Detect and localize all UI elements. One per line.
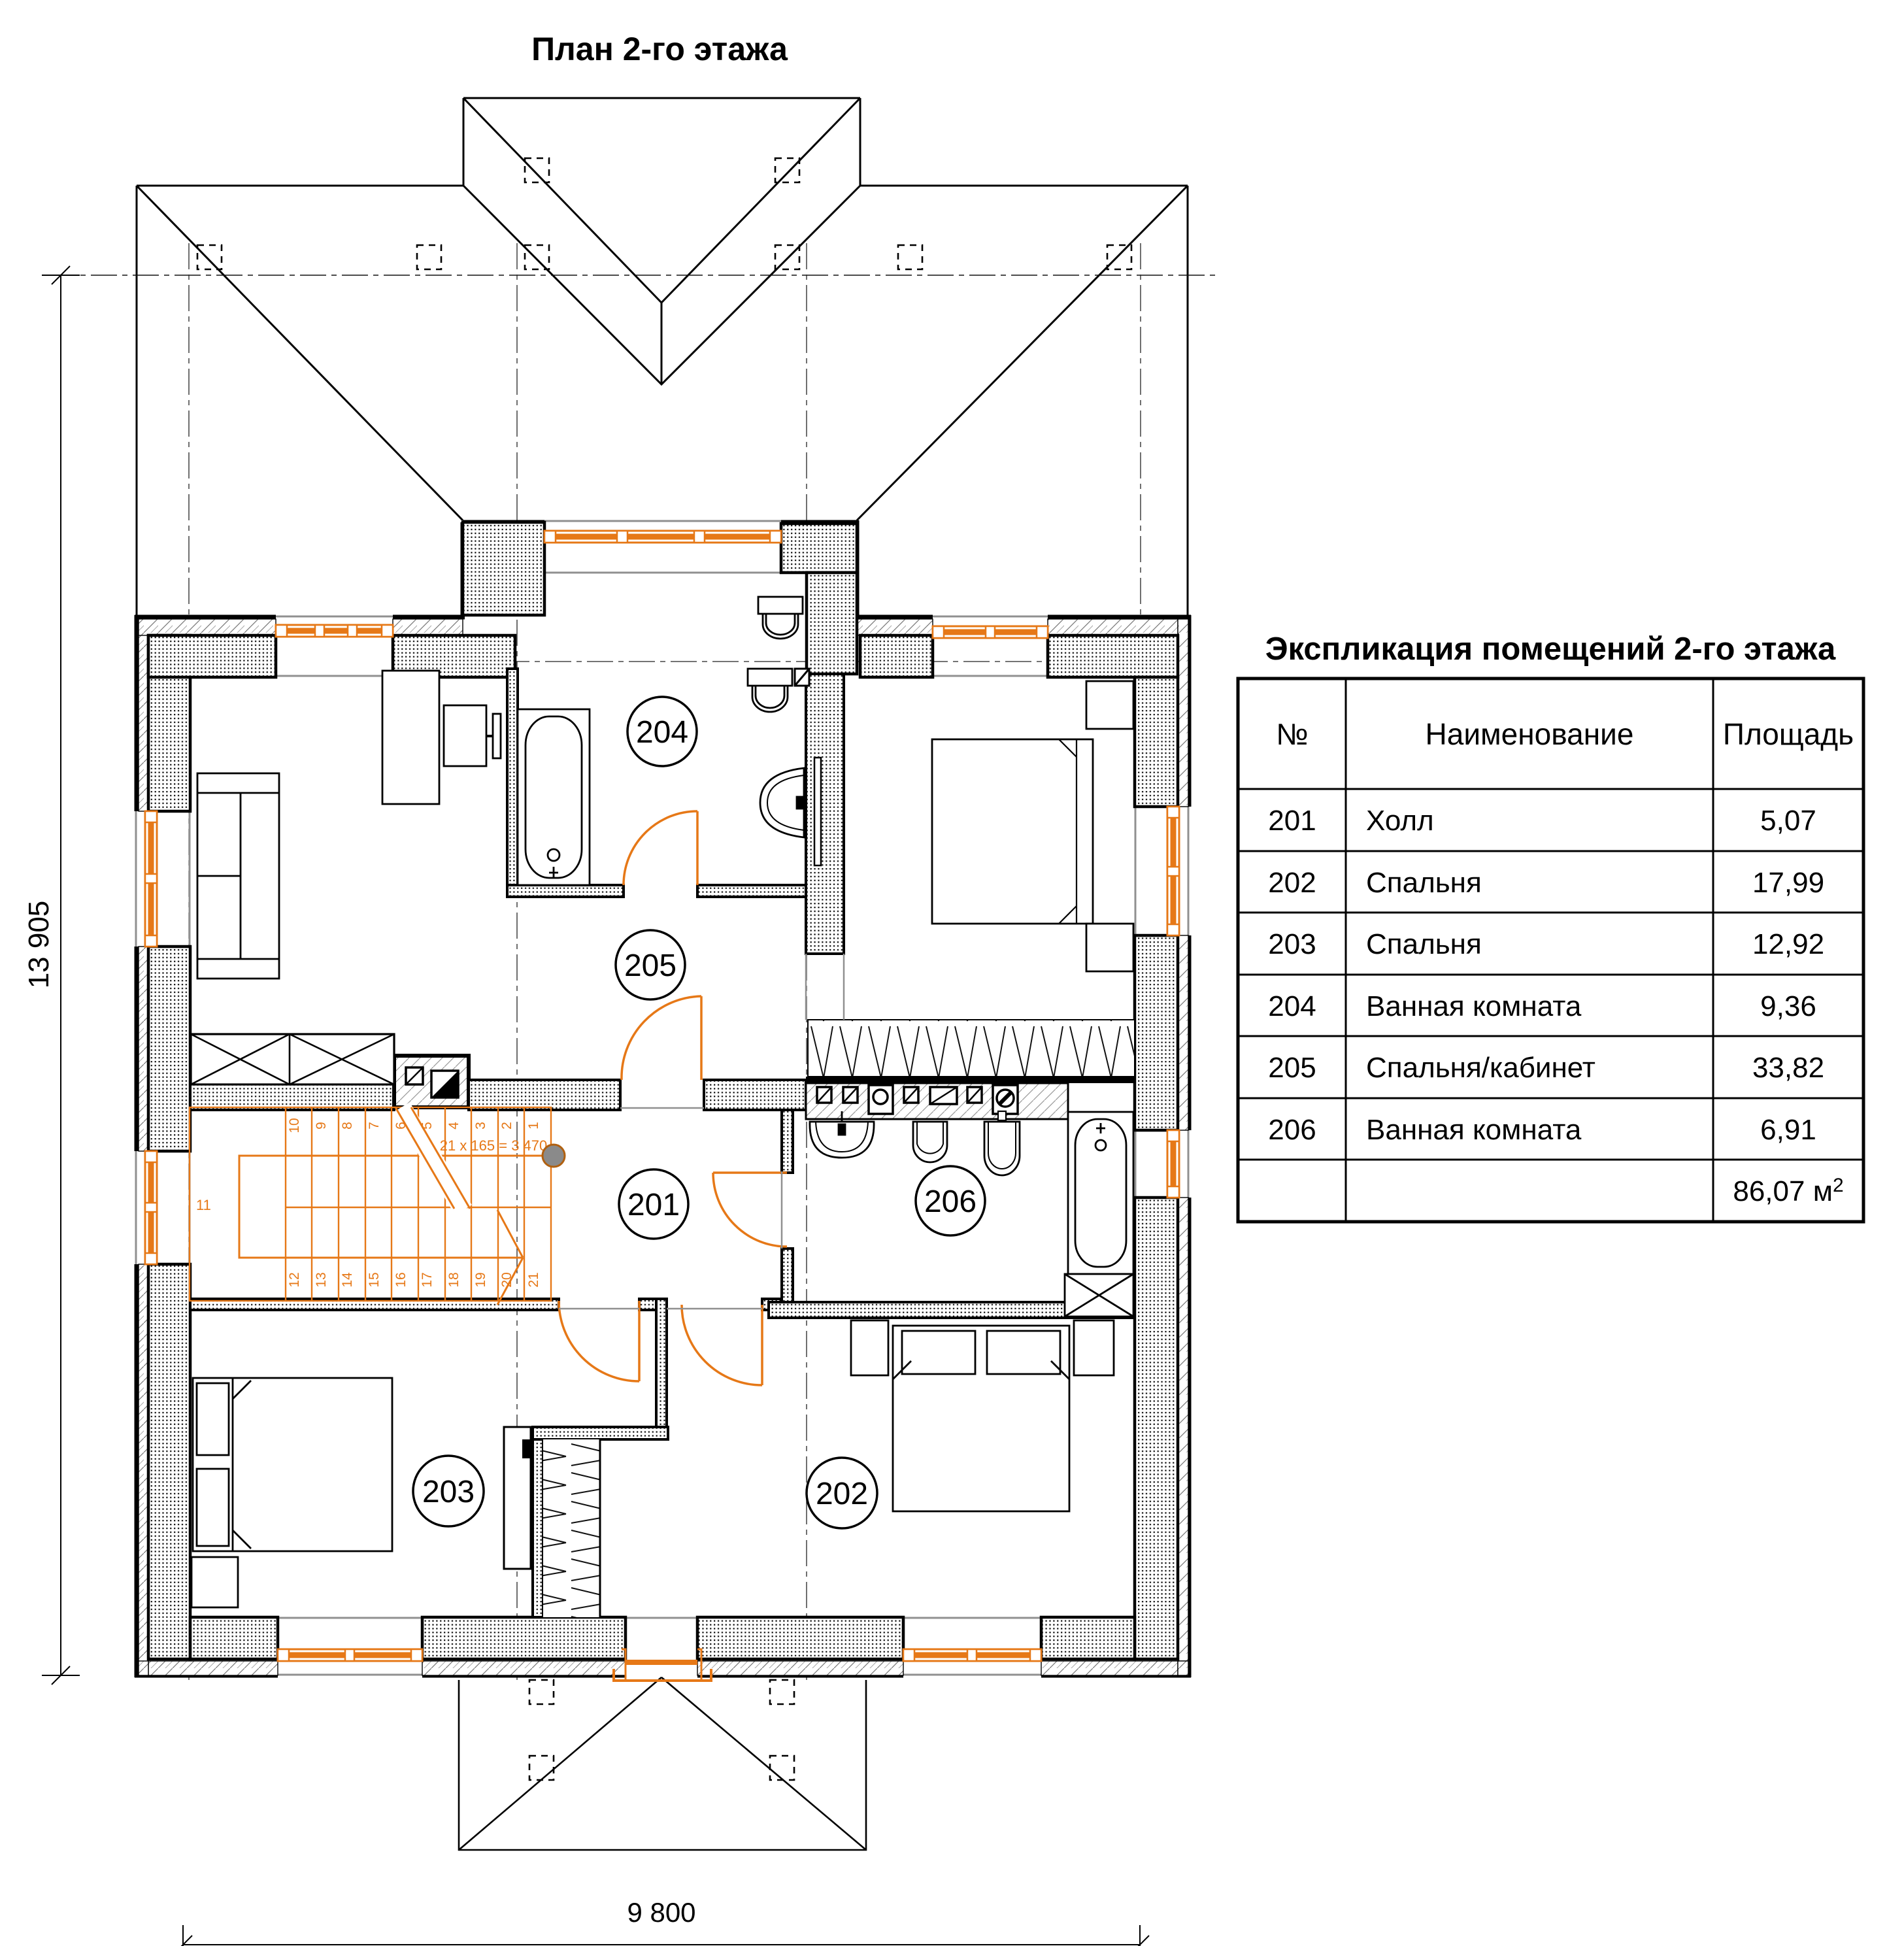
svg-text:5,07: 5,07 [1760, 805, 1816, 837]
svg-text:17: 17 [420, 1272, 435, 1287]
svg-text:203: 203 [1268, 928, 1316, 960]
svg-text:86,07 м2: 86,07 м2 [1733, 1175, 1843, 1207]
svg-text:206: 206 [924, 1184, 977, 1219]
svg-text:3: 3 [473, 1122, 488, 1130]
svg-text:20: 20 [499, 1272, 514, 1287]
svg-text:13: 13 [314, 1272, 329, 1287]
svg-text:204: 204 [1268, 990, 1316, 1022]
svg-text:14: 14 [340, 1272, 355, 1288]
svg-text:201: 201 [1268, 805, 1316, 837]
svg-text:21: 21 [526, 1272, 541, 1287]
svg-text:Холл: Холл [1366, 805, 1434, 837]
svg-text:Наименование: Наименование [1426, 717, 1634, 751]
svg-text:№: № [1276, 717, 1308, 751]
svg-text:16: 16 [393, 1272, 409, 1287]
svg-text:17,99: 17,99 [1752, 867, 1824, 899]
svg-text:9 800: 9 800 [627, 1897, 695, 1928]
svg-text:15: 15 [367, 1272, 382, 1287]
svg-text:7: 7 [367, 1122, 382, 1130]
svg-text:19: 19 [473, 1272, 488, 1287]
svg-text:18: 18 [446, 1272, 461, 1287]
svg-text:205: 205 [1268, 1052, 1316, 1084]
svg-text:6: 6 [393, 1122, 409, 1130]
svg-text:203: 203 [422, 1475, 475, 1509]
svg-text:204: 204 [636, 715, 688, 750]
svg-text:Спальня: Спальня [1366, 867, 1482, 899]
svg-text:Спальня/кабинет: Спальня/кабинет [1366, 1052, 1595, 1084]
svg-text:9,36: 9,36 [1760, 990, 1816, 1022]
svg-text:4: 4 [446, 1122, 461, 1130]
svg-text:201: 201 [627, 1188, 680, 1222]
svg-text:202: 202 [1268, 867, 1316, 899]
svg-text:План 2-го этажа: План 2-го этажа [531, 31, 788, 67]
svg-text:33,82: 33,82 [1752, 1052, 1824, 1084]
svg-text:12: 12 [287, 1272, 302, 1287]
svg-text:12,92: 12,92 [1752, 928, 1824, 960]
svg-text:1: 1 [526, 1122, 541, 1130]
svg-text:Ванная комната: Ванная комната [1366, 990, 1582, 1022]
svg-text:Площадь: Площадь [1723, 717, 1854, 751]
svg-text:21 x 165 = 3 470: 21 x 165 = 3 470 [440, 1137, 548, 1154]
svg-text:10: 10 [287, 1118, 302, 1133]
svg-text:Экспликация помещений 2-го эта: Экспликация помещений 2-го этажа [1265, 631, 1836, 667]
svg-text:Ванная комната: Ванная комната [1366, 1114, 1582, 1146]
svg-text:11: 11 [196, 1197, 211, 1213]
svg-text:5: 5 [420, 1122, 435, 1130]
svg-text:6,91: 6,91 [1760, 1114, 1816, 1146]
svg-text:2: 2 [499, 1122, 514, 1130]
svg-text:205: 205 [624, 948, 676, 983]
svg-text:206: 206 [1268, 1114, 1316, 1146]
svg-text:202: 202 [816, 1477, 868, 1511]
svg-text:Спальня: Спальня [1366, 928, 1482, 960]
svg-text:8: 8 [340, 1122, 355, 1130]
svg-text:13 905: 13 905 [23, 901, 55, 989]
svg-text:9: 9 [314, 1122, 329, 1130]
